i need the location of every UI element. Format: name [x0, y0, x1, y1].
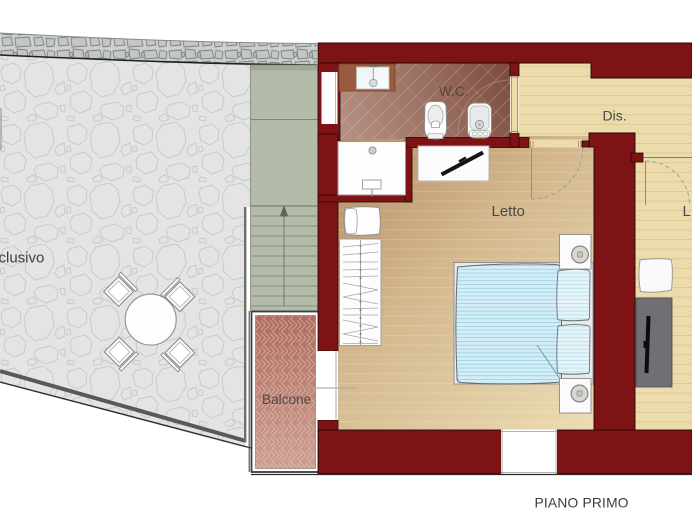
svg-text:Balcone: Balcone — [262, 392, 311, 407]
svg-text:L: L — [683, 203, 691, 220]
svg-text:PIANO PRIMO: PIANO PRIMO — [535, 496, 629, 511]
svg-text:W.C.: W.C. — [439, 84, 468, 99]
svg-text:Letto: Letto — [492, 203, 525, 220]
svg-text:Dis.: Dis. — [603, 108, 627, 124]
svg-text:clusivo: clusivo — [0, 250, 44, 267]
